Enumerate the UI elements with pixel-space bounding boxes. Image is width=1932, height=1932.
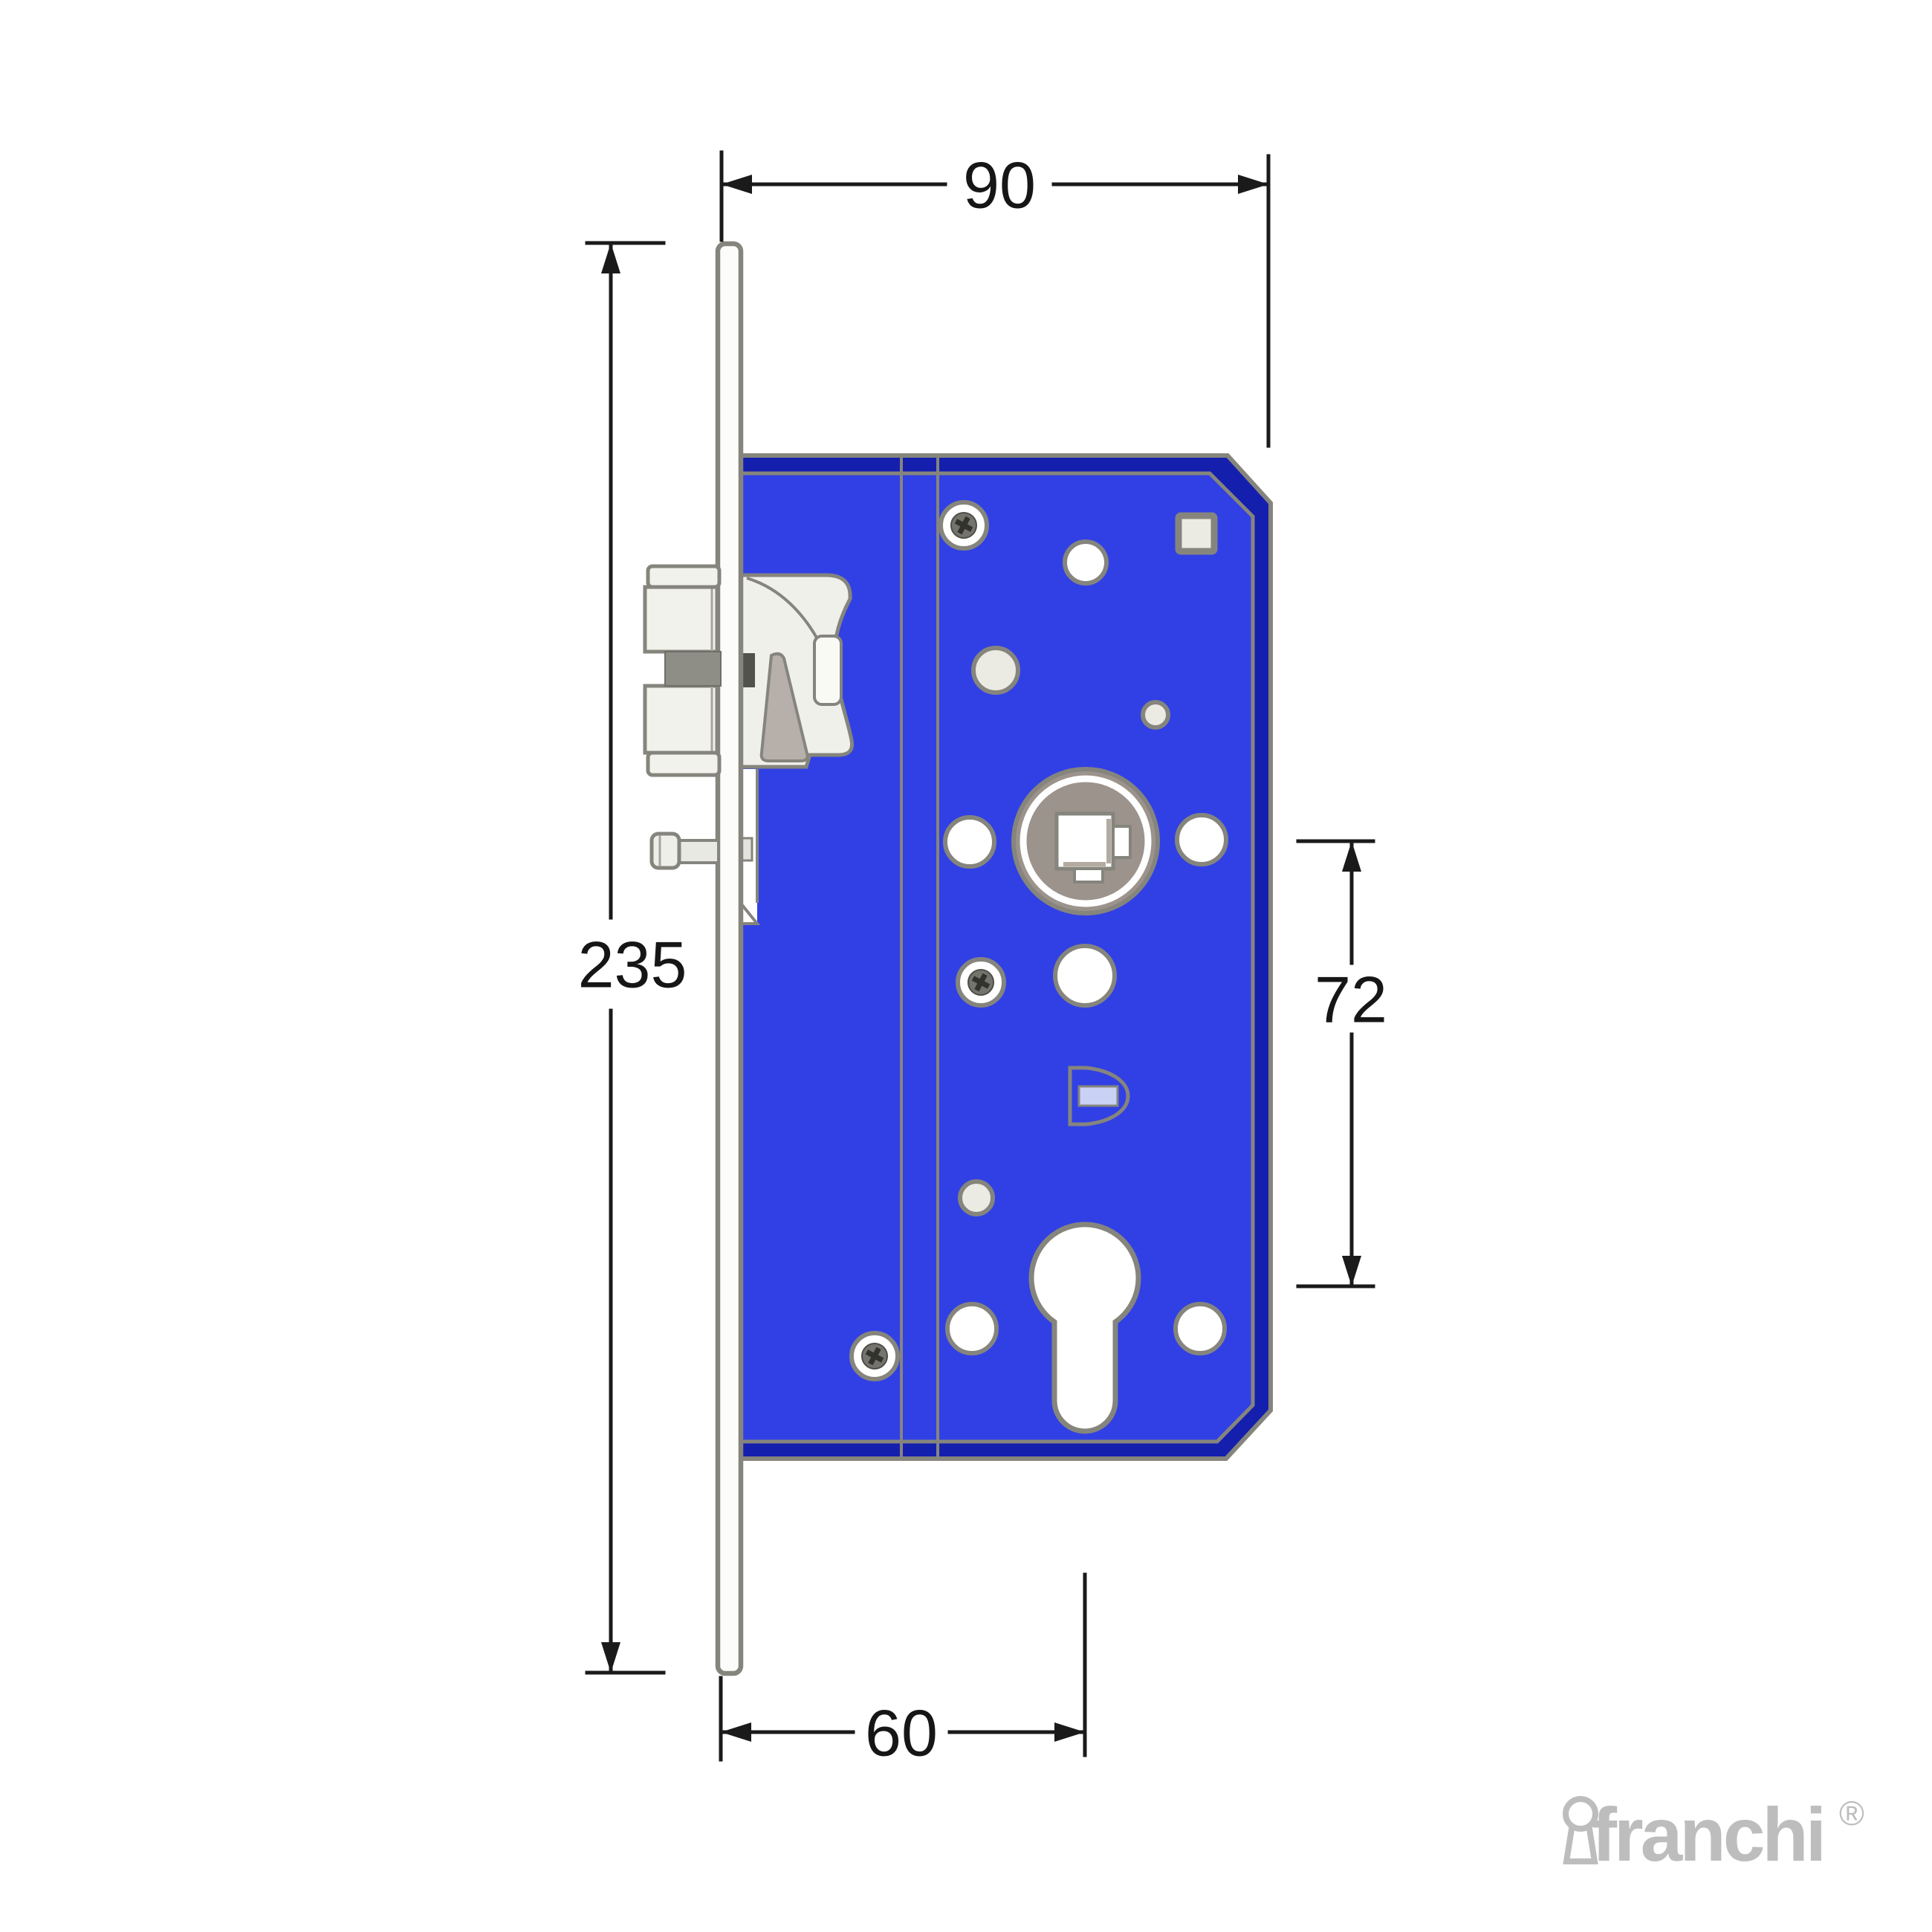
latch-block-upper	[645, 587, 717, 652]
small-hole	[960, 1181, 993, 1214]
guard-pin-cap	[652, 834, 679, 868]
registered-trademark-symbol: ®	[1839, 1794, 1864, 1832]
cylinder-side-hole-right	[1176, 1304, 1225, 1353]
dimension-centres: 72	[1298, 841, 1387, 1286]
keyhole-icon	[1566, 1799, 1595, 1861]
cylinder-side-hole-left	[947, 1304, 996, 1353]
keyhole-circle	[1566, 1799, 1595, 1829]
dimension-value-height: 235	[578, 928, 687, 1002]
round-hole	[1055, 946, 1115, 1005]
technical-drawing-page: 90 235 72 60 franchi ®	[0, 0, 1932, 1932]
arrowhead-down	[1342, 1256, 1361, 1286]
round-hole	[1065, 542, 1106, 583]
arrowhead-left	[721, 1722, 751, 1742]
mortise-lock-technical-drawing: 90 235 72 60 franchi ®	[0, 0, 1932, 1932]
hub-side-hole-right	[1177, 815, 1226, 864]
latch-recess-middle	[665, 652, 721, 686]
hub-side-hole-left	[945, 817, 994, 866]
latch-block-lower	[645, 686, 717, 753]
dimension-value-centres: 72	[1315, 963, 1387, 1037]
guard-pin-shaft	[679, 840, 719, 863]
dimension-total-height: 235	[578, 243, 687, 1673]
brand-logo: franchi ®	[1566, 1792, 1864, 1877]
spindle-bottom-notch	[1074, 869, 1103, 882]
dimension-value-width: 90	[963, 149, 1036, 222]
guard-bolt-pin	[652, 834, 719, 868]
latch-flange-top	[648, 566, 719, 587]
small-hole	[1143, 702, 1168, 727]
arrowhead-right	[1054, 1722, 1085, 1742]
dimension-backset: 60	[721, 1575, 1085, 1770]
brand-logo-text: franchi	[1592, 1792, 1824, 1877]
spindle-side-slot	[1113, 826, 1130, 858]
arrowhead-right	[1238, 175, 1268, 194]
faceplate	[718, 244, 741, 1673]
dimension-value-backset: 60	[865, 1696, 938, 1770]
handle-spindle-hub	[1014, 769, 1158, 913]
arrowhead-left	[722, 175, 752, 194]
latch-follower-bracket	[814, 636, 841, 704]
keep-slot	[1079, 1086, 1118, 1106]
latch-flange-bottom	[648, 753, 719, 775]
fixing-screw-middle	[958, 959, 1004, 1005]
square-hole	[1179, 516, 1214, 551]
fixing-screw-top	[941, 502, 987, 548]
arrowhead-up	[601, 243, 620, 273]
spindle-square-hole	[1057, 814, 1113, 869]
arrowhead-up	[1342, 841, 1361, 872]
latch-housing	[741, 575, 852, 767]
latch-bolt	[645, 566, 721, 775]
fixing-screw-bottom	[852, 1333, 898, 1379]
arrowhead-down	[601, 1642, 620, 1673]
dimension-case-width: 90	[722, 149, 1268, 447]
round-hole	[973, 648, 1018, 693]
latch-slot-dark	[742, 653, 755, 687]
